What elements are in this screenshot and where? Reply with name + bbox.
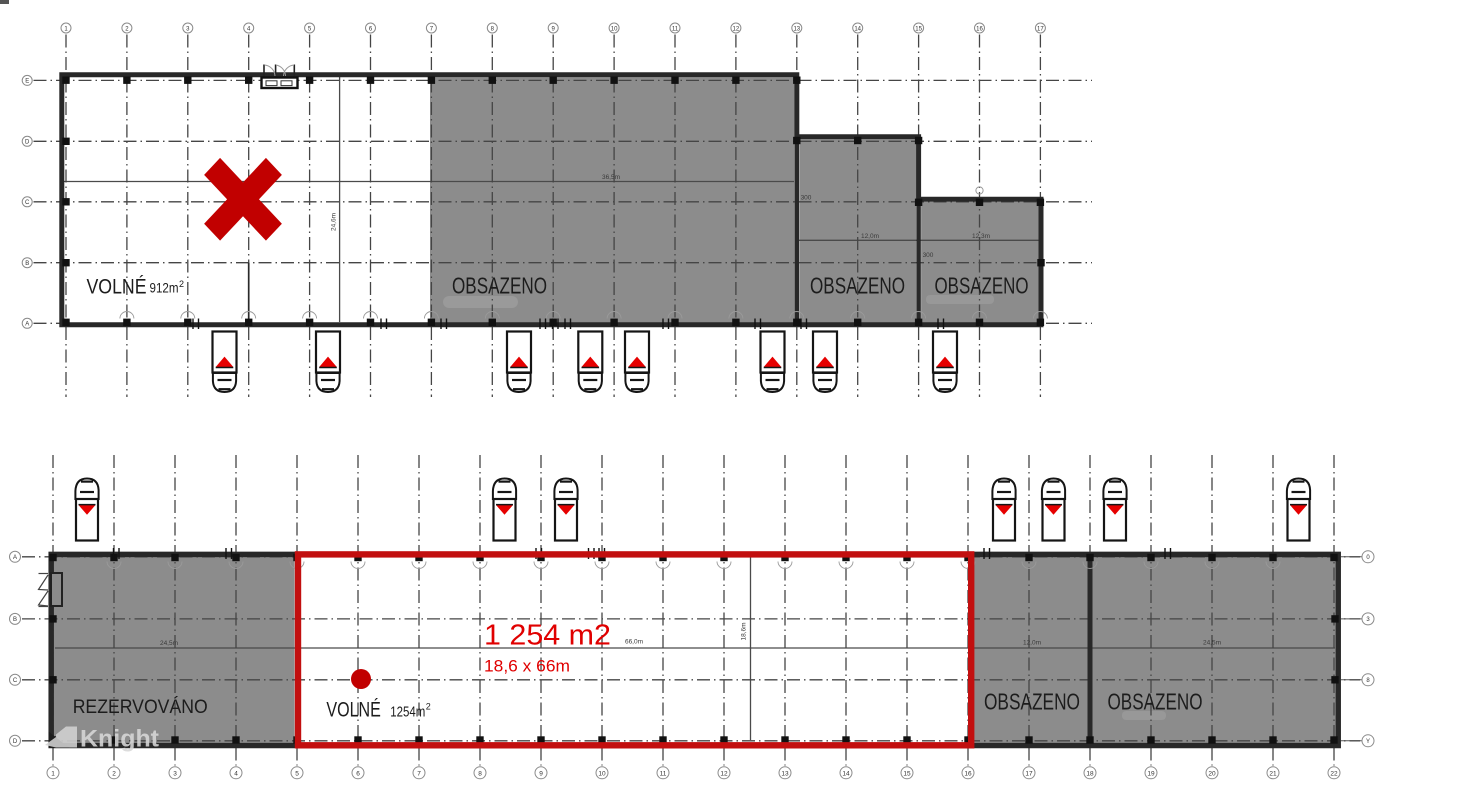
- svg-text:OBSAZENO: OBSAZENO: [935, 273, 1029, 299]
- svg-text:D: D: [25, 140, 30, 146]
- svg-text:6: 6: [356, 770, 360, 777]
- svg-text:18,6 x 66m: 18,6 x 66m: [484, 657, 570, 676]
- svg-text:C: C: [25, 200, 30, 206]
- svg-text:17: 17: [1037, 26, 1044, 32]
- svg-text:1: 1: [51, 770, 55, 777]
- svg-text:13: 13: [781, 770, 789, 777]
- svg-text:2: 2: [426, 702, 431, 712]
- svg-text:20: 20: [1208, 770, 1216, 777]
- svg-text:OBSAZENO: OBSAZENO: [452, 273, 547, 299]
- svg-text:15: 15: [903, 770, 911, 777]
- svg-text:24,5m: 24,5m: [1203, 640, 1221, 647]
- svg-text:18: 18: [1086, 770, 1094, 777]
- svg-text:VOLNÉ: VOLNÉ: [326, 696, 381, 721]
- svg-text:300: 300: [923, 252, 934, 259]
- svg-text:14: 14: [842, 770, 850, 777]
- svg-text:10: 10: [598, 770, 606, 777]
- svg-text:3: 3: [173, 770, 177, 777]
- svg-text:5: 5: [295, 770, 299, 777]
- svg-text:19: 19: [1147, 770, 1155, 777]
- svg-text:12,0m: 12,0m: [861, 233, 879, 240]
- svg-text:66,0m: 66,0m: [625, 639, 643, 646]
- svg-text:912m: 912m: [150, 280, 179, 296]
- svg-text:7: 7: [417, 770, 421, 777]
- svg-text:11: 11: [660, 770, 667, 777]
- svg-text:8: 8: [478, 770, 482, 777]
- svg-text:300: 300: [801, 195, 812, 202]
- svg-text:11: 11: [672, 26, 679, 32]
- svg-text:A: A: [13, 555, 17, 561]
- svg-text:1 254 m2: 1 254 m2: [484, 620, 611, 652]
- svg-text:14: 14: [854, 26, 861, 32]
- svg-text:18,6m: 18,6m: [741, 622, 748, 640]
- svg-text:10: 10: [611, 26, 618, 32]
- svg-text:13: 13: [793, 26, 800, 32]
- svg-text:24,5m: 24,5m: [160, 640, 178, 647]
- svg-text:Knight: Knight: [80, 726, 159, 753]
- svg-text:12: 12: [733, 26, 740, 32]
- svg-text:A: A: [25, 322, 29, 328]
- svg-text:15: 15: [915, 26, 922, 32]
- svg-text:B: B: [25, 261, 29, 267]
- svg-text:VOLNÉ: VOLNÉ: [87, 276, 147, 299]
- svg-text:36,5m: 36,5m: [602, 174, 620, 181]
- svg-text:4: 4: [234, 770, 238, 777]
- svg-text:OBSAZENO: OBSAZENO: [1108, 689, 1203, 715]
- svg-text:C: C: [13, 678, 18, 684]
- svg-text:OBSAZENO: OBSAZENO: [810, 273, 905, 299]
- svg-text:REZERVOVÁNO: REZERVOVÁNO: [73, 697, 208, 718]
- svg-text:9: 9: [539, 770, 543, 777]
- svg-text:2: 2: [179, 279, 184, 289]
- svg-text:1254m: 1254m: [390, 704, 425, 721]
- svg-text:12: 12: [720, 770, 728, 777]
- svg-text:2: 2: [112, 770, 116, 777]
- svg-text:B: B: [13, 617, 17, 623]
- svg-text:12,3m: 12,3m: [972, 233, 990, 240]
- svg-text:16: 16: [976, 26, 983, 32]
- svg-text:22: 22: [1330, 770, 1338, 777]
- svg-text:E: E: [25, 79, 29, 85]
- svg-text:16: 16: [964, 770, 972, 777]
- svg-text:D: D: [13, 739, 18, 745]
- svg-text:OBSAZENO: OBSAZENO: [984, 689, 1080, 715]
- svg-text:17: 17: [1025, 770, 1033, 777]
- svg-text:12,0m: 12,0m: [1023, 640, 1041, 647]
- svg-text:Y: Y: [1366, 739, 1370, 745]
- svg-text:24,6m: 24,6m: [331, 213, 338, 231]
- svg-text:21: 21: [1269, 770, 1277, 777]
